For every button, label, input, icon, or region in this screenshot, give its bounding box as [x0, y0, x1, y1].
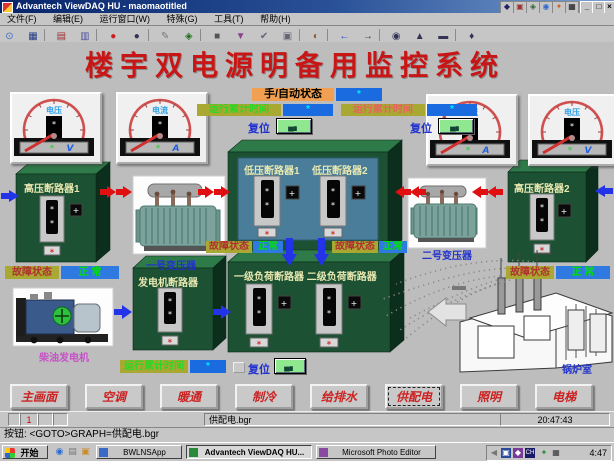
nav-power-button[interactable]: 供配电 — [385, 384, 443, 409]
gauge-unit: V — [585, 146, 593, 156]
tray-app-icon[interactable]: ◆ — [513, 448, 523, 458]
quick-launch-desktop-icon[interactable]: ▤ — [67, 446, 78, 457]
gauge-readout: * — [156, 144, 161, 154]
task-icon — [319, 448, 328, 457]
gauge-readout: * — [50, 144, 55, 154]
window-title: Advantech ViewDAQ HU - maomaotitled — [16, 0, 187, 13]
voltage-gauge-2: * V 电压 * — [528, 94, 614, 166]
message-bar: 按钮: <GOTO>GRAPH=供配电.bgr — [0, 427, 614, 442]
menu-bar: 文件(F) 编辑(E) 运行窗口(W) 特殊(G) 工具(T) 帮助(H) — [0, 13, 614, 26]
status-bar: 1 供配电.bgr 20:47:43 — [0, 411, 614, 427]
tool-bar: ⊙ ▦ ▤ ▥ ● ● ✎ ◈ ■ ▼ ✔ ▣ ◐ ← → ◉ ▲ ▬ ♦ — [0, 26, 614, 43]
hv-breaker1-title: 高压断路器1 — [24, 180, 80, 195]
menu-run-window[interactable]: 运行窗口(W) — [93, 13, 158, 25]
current-gauge-1: * A 电流 * — [116, 92, 208, 164]
gauge-label: 电流 — [152, 105, 168, 115]
menu-tools[interactable]: 工具(T) — [207, 13, 251, 25]
nav-water-button[interactable]: 给排水 — [310, 384, 368, 409]
lv-breaker2-title: 低压断路器2 — [312, 162, 368, 177]
voltage-gauge-1: * V 电压 * — [10, 92, 102, 164]
gauge-unit: A — [172, 144, 180, 154]
input-language-icon[interactable]: CH — [525, 448, 535, 458]
runtime1-value: * — [283, 104, 333, 116]
quick-launch-ie-icon[interactable]: ◉ — [54, 446, 65, 457]
tray-app-icon[interactable]: ✦ — [539, 448, 549, 458]
task-icon — [99, 448, 108, 457]
application-window: Advantech ViewDAQ HU - maomaotitled ◆ ▣ … — [0, 0, 614, 461]
fault-status-value: 正常 — [253, 241, 283, 253]
mode-status-value: * — [336, 88, 382, 101]
fault-status-value: 正 常 — [61, 266, 119, 279]
mode-status-label: 手/自动状态 — [252, 88, 334, 101]
gauge-unit: V — [67, 144, 75, 154]
nav-lighting-button[interactable]: 照明 — [460, 384, 518, 409]
menu-special[interactable]: 特殊(G) — [160, 13, 205, 25]
task-button-photo-editor[interactable]: Microsoft Photo Editor — [316, 445, 436, 459]
reset2-label: 复位 — [408, 120, 434, 136]
reset1-button[interactable]: ▄▖ — [276, 118, 312, 134]
task-label: BWLNSApp — [123, 448, 166, 457]
tray-app-icon[interactable]: ▣ — [501, 448, 511, 458]
gauge-readout: * — [466, 146, 471, 156]
gauge-value: * — [570, 122, 574, 131]
fault-status-label: 故障状态 — [332, 241, 378, 253]
task-label: Microsoft Photo Editor — [342, 448, 421, 457]
generator-breaker-title: 发电机断路器 — [138, 274, 198, 289]
volume-icon[interactable]: ◀ — [489, 448, 499, 458]
menu-help[interactable]: 帮助(H) — [253, 13, 298, 25]
gauge-value: * — [158, 120, 162, 129]
nav-hvac-button[interactable]: 暖通 — [160, 384, 218, 409]
current-graph-file: 供配电.bgr — [204, 413, 502, 426]
tray-app-icon[interactable]: ▦ — [551, 448, 561, 458]
transformer1-label: 一号变压器 — [138, 257, 204, 272]
gauge-unit: A — [482, 146, 490, 156]
quick-launch-outlook-icon[interactable]: ▣ — [80, 446, 91, 457]
reset1-label: 复位 — [246, 120, 272, 136]
runtime2-value: * — [427, 104, 477, 116]
runtime2-label: 运行累计时间 — [341, 104, 425, 116]
taskbar: 开始 ◉ ▤ ▣ BWLNSApp Advantech ViewDAQ HU..… — [0, 442, 614, 461]
boiler-label: 锅炉室 — [554, 361, 600, 376]
runtime3-value: * — [190, 360, 226, 373]
status-message: 按钮: <GOTO>GRAPH=供配电.bgr — [4, 429, 159, 440]
app-icon — [2, 2, 13, 13]
status-cell — [8, 413, 20, 426]
task-button-viewdaq[interactable]: Advantech ViewDAQ HU... — [186, 445, 312, 459]
fault-status-label: 故障状态 — [5, 266, 59, 279]
windows-logo-icon — [5, 448, 15, 458]
task-button-bwlnsapp[interactable]: BWLNSApp — [96, 445, 182, 459]
hmi-clock: 20:47:43 — [500, 413, 610, 426]
status-cell — [53, 413, 68, 426]
page-number-cell: 1 — [20, 413, 38, 426]
runtime1-label: 运行累计时间 — [197, 104, 281, 116]
runtime3-label: 运行累计时间 — [120, 360, 188, 373]
task-icon — [189, 448, 198, 457]
gauge-readout: * — [568, 146, 573, 156]
nav-aircon-button[interactable]: 空调 — [85, 384, 143, 409]
reset3-button[interactable]: ▄▖ — [274, 358, 306, 374]
gauge-label: 电压 — [564, 107, 580, 117]
fault-status-label: 故障状态 — [206, 241, 252, 253]
task-label: Advantech ViewDAQ HU... — [205, 448, 304, 457]
transformer2-label: 二号变压器 — [416, 247, 478, 262]
fault-status-label: 故障状态 — [506, 266, 554, 279]
load-breaker-title: 一级负荷断路器 二级负荷断路器 — [234, 268, 377, 283]
page-title: 楼宇双电源明备用监控系统 — [80, 44, 510, 80]
title-bar: Advantech ViewDAQ HU - maomaotitled ◆ ▣ … — [0, 0, 614, 13]
reset2-button[interactable]: ▄▖ — [438, 118, 474, 134]
fault-status-value: 正 常 — [556, 266, 610, 279]
menu-edit[interactable]: 编辑(E) — [46, 13, 90, 25]
start-button[interactable]: 开始 — [2, 445, 48, 459]
hv-breaker2-title: 高压断路器2 — [514, 180, 570, 195]
system-tray: ◀ ▣ ◆ CH ✦ ▦ 4:47 — [486, 445, 612, 461]
nav-cooling-button[interactable]: 制冷 — [235, 384, 293, 409]
status-cell — [38, 413, 53, 426]
start-label: 开始 — [20, 448, 38, 458]
nav-elevator-button[interactable]: 电梯 — [535, 384, 593, 409]
fault-status-value: 正常 — [379, 241, 407, 253]
lv-breaker1-title: 低压断路器1 — [244, 162, 300, 177]
nav-main-screen-button[interactable]: 主画面 — [10, 384, 68, 409]
spin-button[interactable] — [233, 362, 245, 373]
menu-file[interactable]: 文件(F) — [0, 13, 44, 25]
gauge-label: 电压 — [46, 105, 62, 115]
gauge-value: * — [52, 120, 56, 129]
reset3-label: 复位 — [246, 361, 272, 377]
taskbar-clock: 4:47 — [589, 447, 607, 459]
generator-label: 柴油发电机 — [32, 349, 96, 364]
